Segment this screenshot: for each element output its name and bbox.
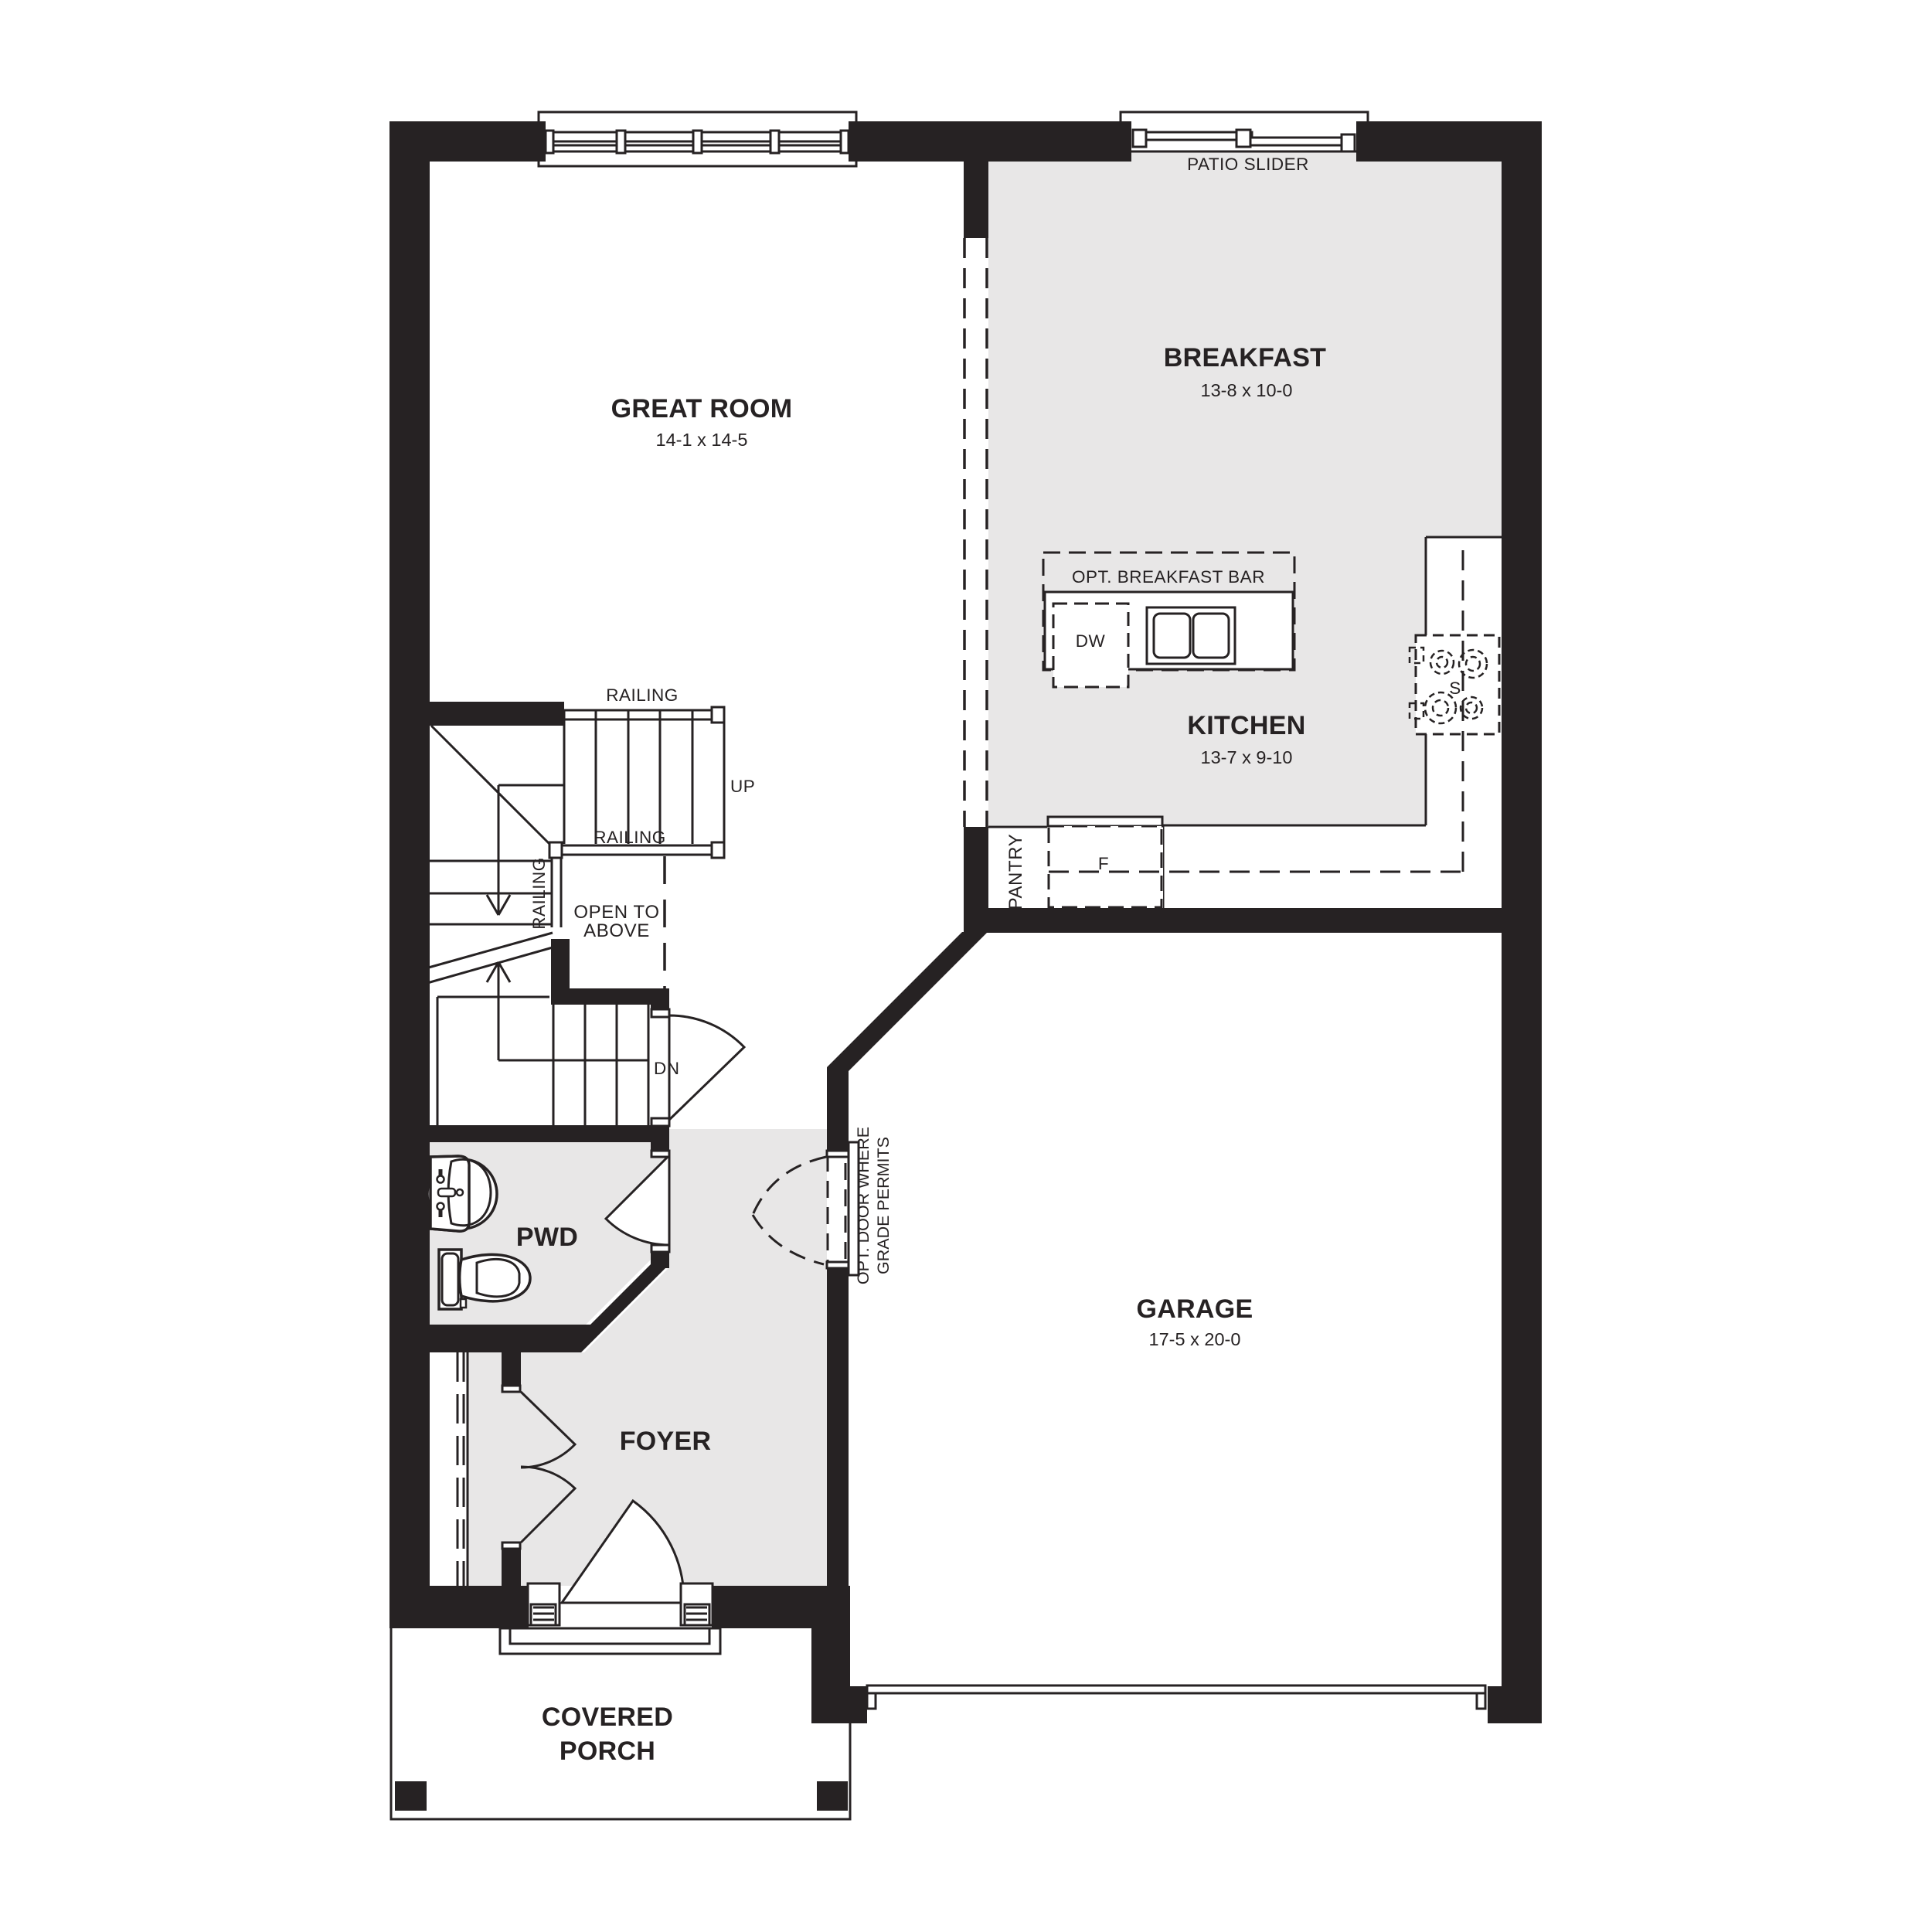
svg-text:UP: UP <box>730 777 755 796</box>
svg-text:14-1 x 14-5: 14-1 x 14-5 <box>656 430 748 450</box>
svg-text:13-8 x 10-0: 13-8 x 10-0 <box>1201 380 1293 400</box>
svg-text:COVERED: COVERED <box>542 1702 673 1732</box>
svg-text:GARAGE: GARAGE <box>1136 1294 1253 1324</box>
svg-text:13-7 x 9-10: 13-7 x 9-10 <box>1201 747 1293 767</box>
svg-text:KITCHEN: KITCHEN <box>1187 711 1305 740</box>
svg-text:DW: DW <box>1076 631 1106 651</box>
svg-text:PANTRY: PANTRY <box>1005 834 1026 910</box>
svg-text:ABOVE: ABOVE <box>583 920 650 941</box>
svg-text:GREAT ROOM: GREAT ROOM <box>611 394 793 423</box>
svg-text:RAILING: RAILING <box>529 857 549 930</box>
svg-text:OPEN TO: OPEN TO <box>573 902 659 923</box>
svg-text:OPT. BREAKFAST BAR: OPT. BREAKFAST BAR <box>1072 567 1265 587</box>
svg-text:FOYER: FOYER <box>620 1427 712 1456</box>
svg-text:DN: DN <box>654 1059 680 1078</box>
svg-text:S: S <box>1449 679 1461 698</box>
svg-text:F: F <box>1098 854 1109 873</box>
svg-text:OPT. DOOR WHERE: OPT. DOOR WHERE <box>854 1127 872 1284</box>
svg-text:PATIO SLIDER: PATIO SLIDER <box>1187 155 1309 174</box>
svg-text:PWD: PWD <box>516 1223 578 1252</box>
svg-text:BREAKFAST: BREAKFAST <box>1164 343 1327 372</box>
svg-text:RAILING: RAILING <box>594 828 666 847</box>
svg-text:PORCH: PORCH <box>560 1736 655 1766</box>
svg-text:17-5 x 20-0: 17-5 x 20-0 <box>1149 1329 1241 1349</box>
svg-text:RAILING: RAILING <box>606 685 679 705</box>
svg-text:GRADE PERMITS: GRADE PERMITS <box>874 1137 893 1274</box>
